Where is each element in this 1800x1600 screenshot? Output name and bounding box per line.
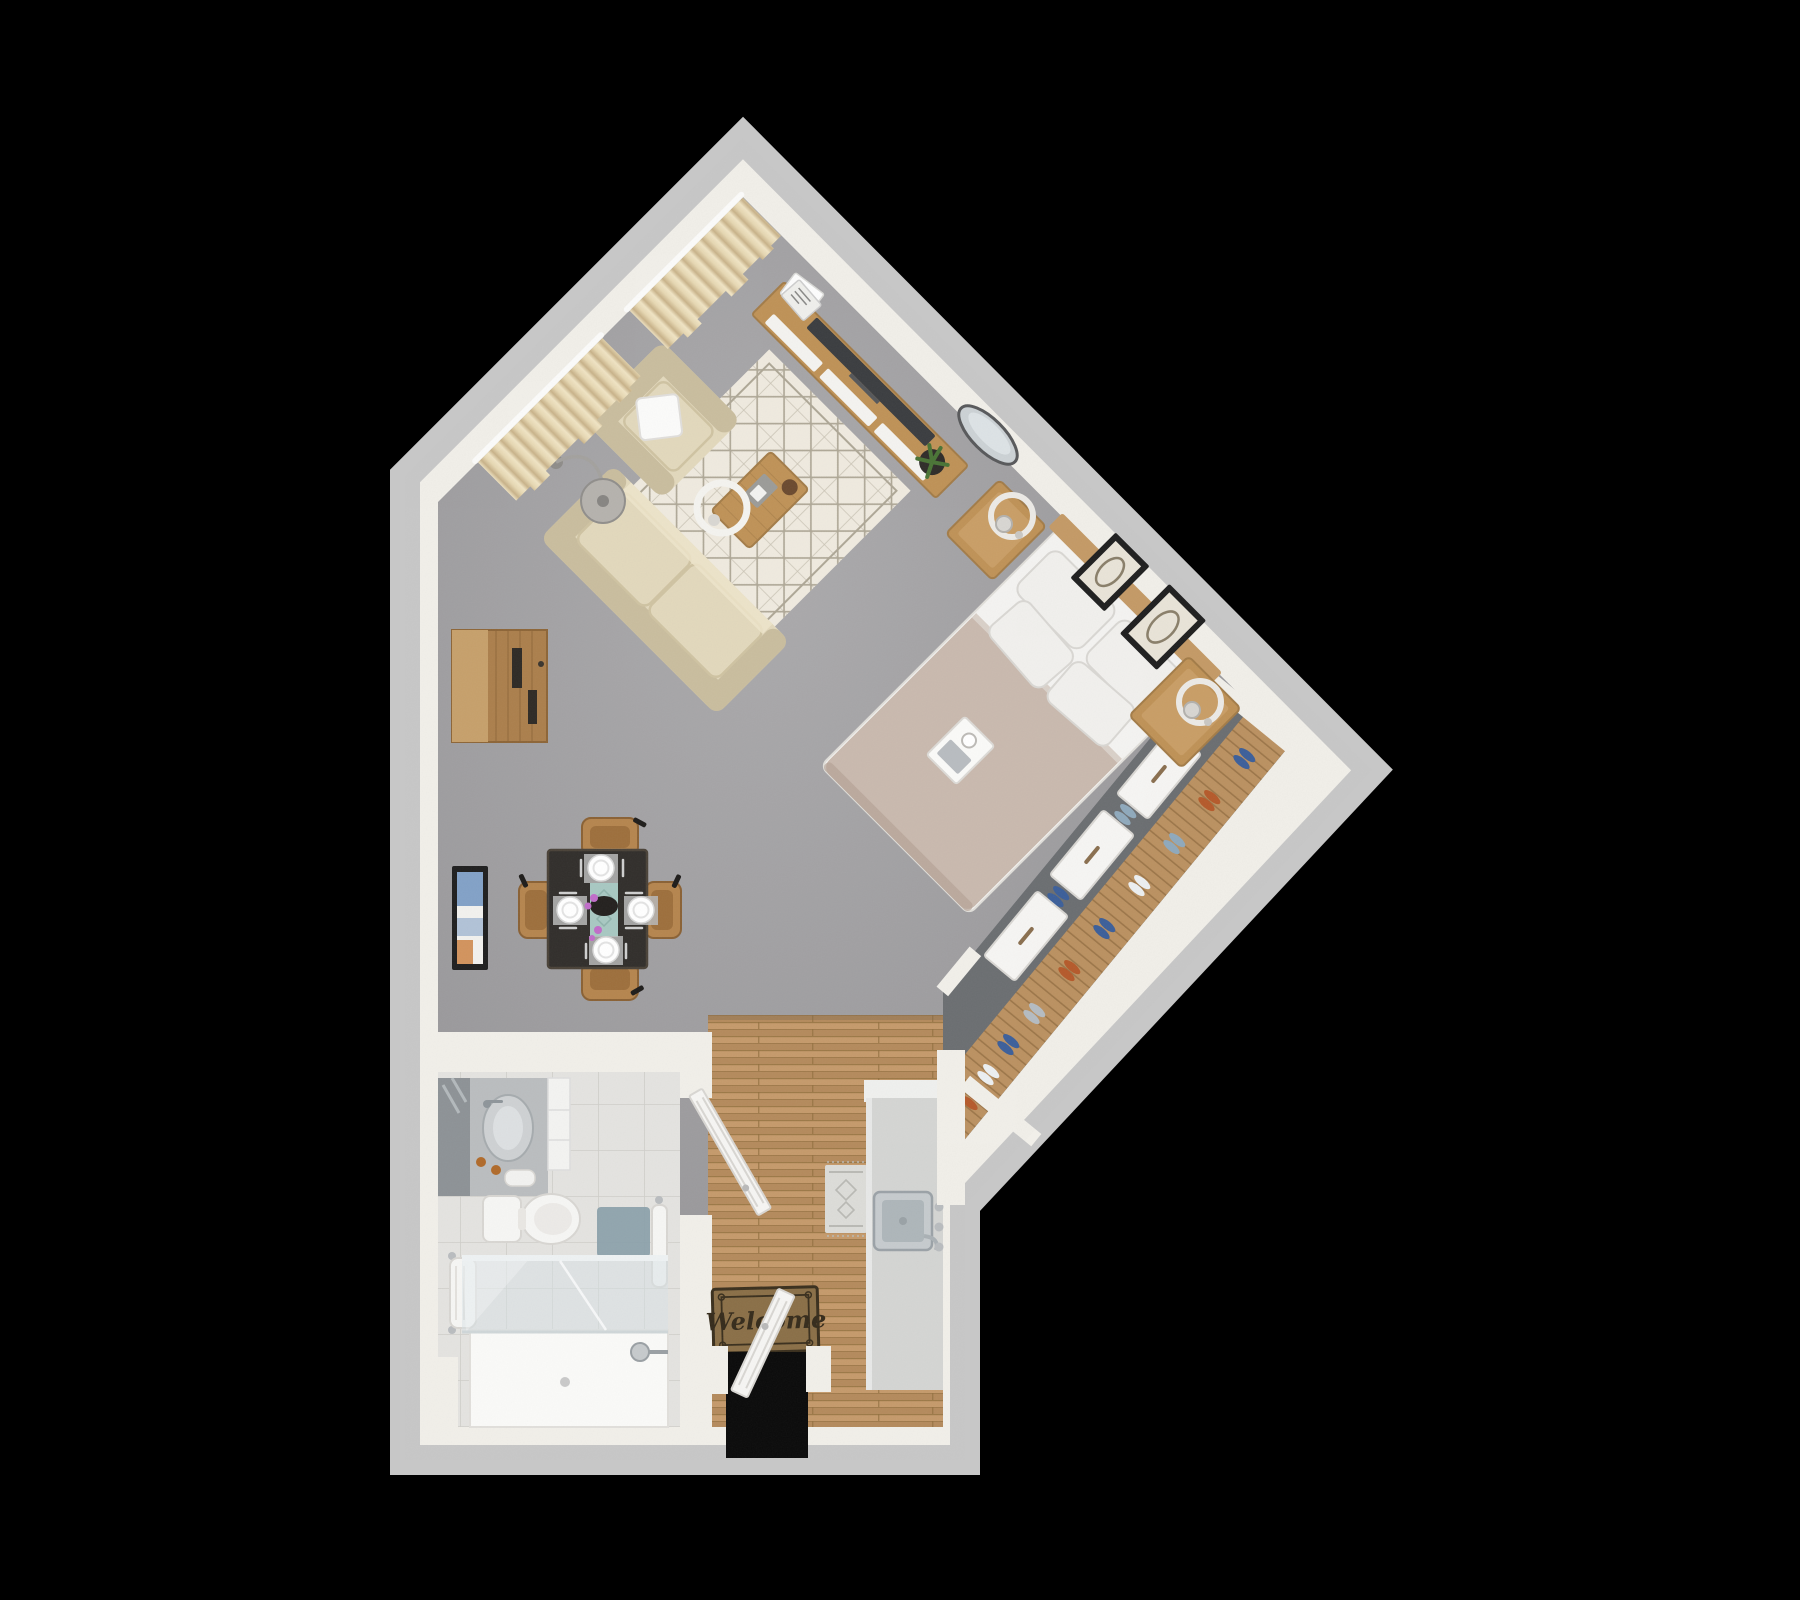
floor-plan-canvas: Welcome	[0, 0, 1800, 1600]
screenshot-root: Welcome	[0, 0, 1800, 1600]
